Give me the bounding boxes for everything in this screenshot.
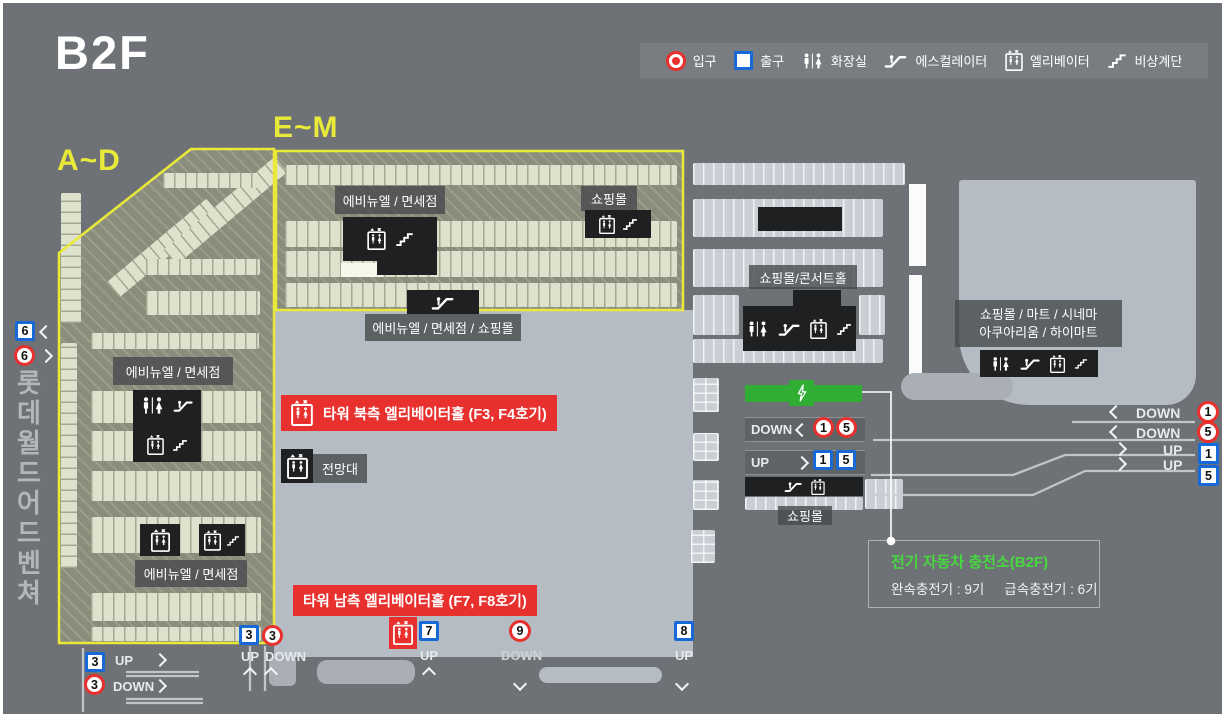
- exit-marker-3: 3: [85, 652, 105, 672]
- escalator-icon: [1020, 356, 1041, 371]
- legend-stairs: 비상계단: [1107, 51, 1182, 70]
- legend-restroom-label: 화장실: [831, 51, 867, 70]
- elevator-icon: [291, 400, 313, 426]
- legend-entrance: 입구: [666, 51, 717, 71]
- elevator-icon: [204, 530, 221, 551]
- entrance-marker-1: 1: [813, 417, 834, 438]
- center-escalator-elevator-block: [745, 477, 863, 496]
- chevron-left-icon: [795, 423, 809, 437]
- zone-label-ad: A~D: [57, 144, 121, 178]
- elevator-icon: [393, 621, 413, 645]
- stairs-icon: [395, 232, 414, 246]
- label-center-mall: 쇼핑몰: [778, 506, 832, 525]
- label-em-avenuel: 에비뉴엘 / 면세점: [335, 186, 445, 214]
- restroom-icon: [141, 397, 165, 414]
- legend-stairs-label: 비상계단: [1134, 51, 1182, 70]
- entrance-icon: [666, 51, 686, 71]
- stairs-icon: [622, 218, 638, 230]
- exit-marker-7: 7: [419, 621, 439, 641]
- floor-title: B2F: [55, 25, 150, 80]
- b2f-parking-map: B2F A~D E~M 롯데 월드 어드벤쳐 입구 출구 화장실 에스컬레이터 …: [3, 3, 1222, 714]
- elevator-icon: [151, 529, 170, 552]
- facility-block-em-avenuel: [343, 217, 437, 261]
- label-ad-avenuel-top: 에비뉴엘 / 면세점: [113, 357, 233, 385]
- legend-exit: 출구: [734, 51, 784, 70]
- label-em-mall: 쇼핑몰: [581, 186, 637, 211]
- legend-elevator: 엘리베이터: [1005, 50, 1090, 71]
- label-mall-concert: 쇼핑몰/콘서트홀: [749, 265, 857, 289]
- ev-slow-chargers: 완속충전기 : 9기: [891, 578, 984, 598]
- escalator-block-em: [407, 290, 479, 314]
- entrance-marker-3: 3: [84, 674, 105, 695]
- tower-south-elevator-icon-box: [389, 617, 417, 649]
- facility-block-ad-main: [133, 390, 201, 462]
- ev-title: 전기 자동차 충전소(B2F): [891, 551, 1099, 572]
- stairs-icon: [226, 535, 240, 546]
- ev-fast-chargers: 급속충전기 : 6기: [1004, 578, 1097, 598]
- entrance-marker-5: 5: [1197, 421, 1219, 443]
- escalator-icon: [778, 321, 801, 337]
- legend-elevator-label: 엘리베이터: [1030, 51, 1090, 70]
- stairs-icon: [1074, 358, 1088, 369]
- exit-marker-8: 8: [674, 621, 694, 641]
- ev-charging-box: [789, 380, 814, 406]
- entrance-marker-9: 9: [509, 620, 531, 642]
- legend-escalator-label: 에스컬레이터: [915, 51, 987, 70]
- elevator-block-ad: [140, 524, 180, 556]
- stairs-icon: [1107, 53, 1127, 68]
- lightning-bolt-icon: [796, 384, 808, 402]
- elevator-stairs-block-ad: [199, 524, 245, 556]
- elevator-icon: [367, 228, 386, 250]
- exit-marker-1: 1: [813, 450, 833, 470]
- label-mall-mart: 쇼핑몰 / 마트 / 시네마 아쿠아리움 / 하이마트: [955, 300, 1122, 347]
- entrance-marker-5: 5: [836, 417, 857, 438]
- label-ad-avenuel-bottom: 에비뉴엘 / 면세점: [135, 560, 247, 587]
- legend-bar: 입구 출구 화장실 에스컬레이터 엘리베이터 비상계단: [640, 43, 1208, 78]
- restroom-icon: [747, 321, 769, 337]
- stairs-icon: [836, 323, 852, 335]
- facility-block-notch: [377, 261, 437, 275]
- exit-marker-5: 5: [836, 450, 856, 470]
- exit-marker-3: 3: [239, 625, 259, 645]
- legend-restroom: 화장실: [802, 51, 867, 70]
- escalator-icon: [173, 398, 194, 413]
- lotte-world-adventure-label: 롯데 월드 어드벤쳐: [13, 368, 45, 608]
- elevator-icon: [287, 454, 308, 479]
- escalator-icon: [784, 480, 803, 493]
- observatory-label: 전망대: [313, 454, 367, 483]
- facility-block-concert: [743, 306, 856, 351]
- restroom-icon: [991, 357, 1011, 371]
- elevator-icon: [1005, 50, 1023, 71]
- facility-block-mart: [980, 350, 1098, 377]
- escalator-icon: [431, 294, 455, 311]
- exit-marker-6: 6: [15, 321, 35, 341]
- legend-entrance-label: 입구: [693, 51, 717, 70]
- elevator-icon: [811, 479, 825, 495]
- legend-exit-label: 출구: [760, 51, 784, 70]
- elevator-icon: [147, 435, 164, 455]
- exit-marker-5: 5: [1198, 465, 1219, 486]
- tower-north-elevator-label: 타워 북측 엘리베이터홀 (F3, F4호기): [281, 395, 557, 431]
- tower-south-elevator-label: 타워 남측 엘리베이터홀 (F7, F8호기): [293, 585, 537, 616]
- entrance-marker-3: 3: [262, 625, 283, 646]
- entrance-marker-6: 6: [14, 345, 35, 366]
- elevator-icon: [810, 319, 827, 339]
- legend-escalator: 에스컬레이터: [884, 51, 987, 70]
- observatory-elevator-block: [281, 449, 313, 483]
- ev-charger-info-box: 전기 자동차 충전소(B2F) 완속충전기 : 9기 급속충전기 : 6기: [868, 540, 1100, 608]
- restroom-icon: [802, 53, 824, 69]
- label-em-below: 에비뉴엘 / 면세점 / 쇼핑몰: [365, 314, 521, 341]
- chevron-right-icon: [795, 456, 809, 470]
- escalator-icon: [884, 52, 908, 69]
- exit-marker-1: 1: [1198, 443, 1219, 464]
- elevator-icon: [1050, 355, 1065, 373]
- entrance-marker-1: 1: [1197, 401, 1219, 423]
- facility-block-em-mall: [585, 210, 651, 238]
- zone-label-em: E~M: [273, 111, 339, 145]
- exit-icon: [734, 51, 753, 70]
- elevator-icon: [599, 215, 615, 234]
- stairs-icon: [172, 439, 188, 451]
- facility-block-concert-notch: [793, 290, 841, 307]
